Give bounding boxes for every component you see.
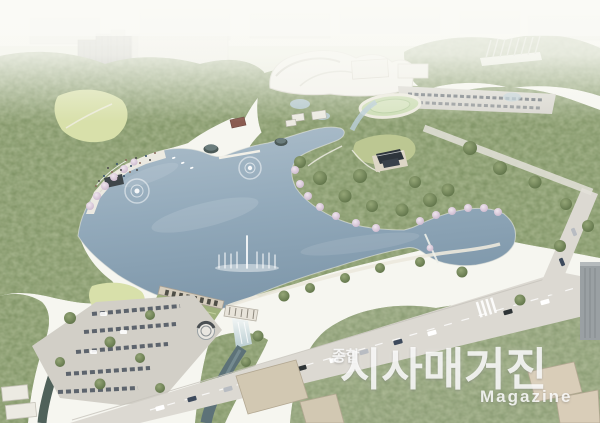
aerial-park-rendering: 종합 시사매거진 Magazine — [0, 0, 600, 423]
cylindrical-pavilion — [198, 322, 215, 339]
highrise-tower — [580, 262, 600, 340]
